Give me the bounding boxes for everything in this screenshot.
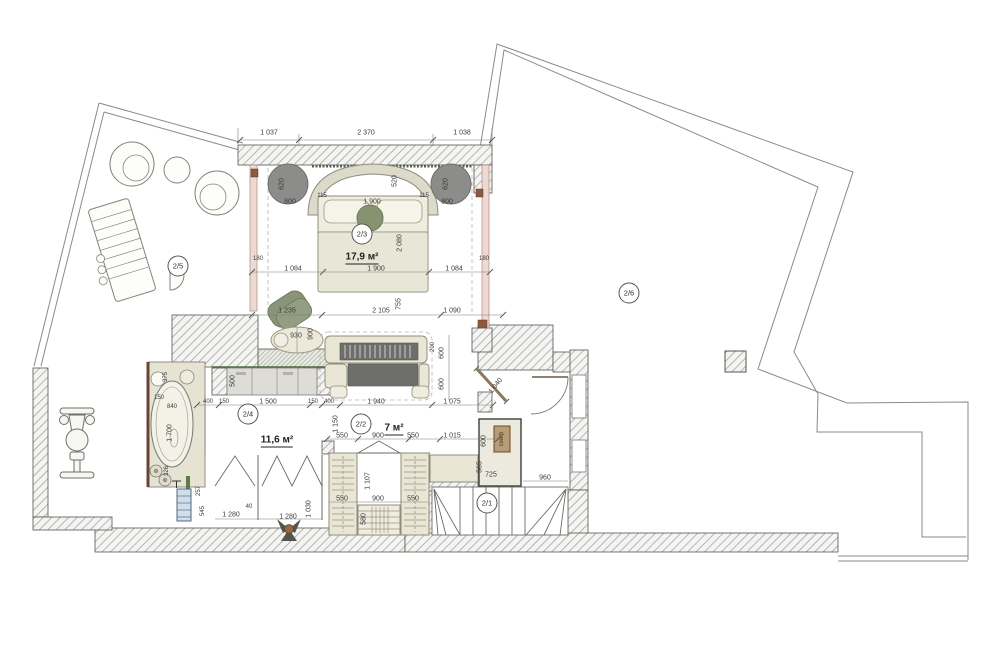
- radiator: [177, 489, 191, 521]
- dimension-label: 1 500: [259, 399, 277, 406]
- dimension-label: 565: [477, 461, 484, 473]
- dimension-label: 550: [336, 496, 348, 503]
- bathtub-zone: [148, 362, 205, 487]
- dimension-label: 600: [439, 347, 446, 359]
- dimension-label: 930: [290, 333, 302, 340]
- dimension-label: 2 080: [397, 234, 404, 252]
- dimension-label: 1 075: [443, 399, 461, 406]
- dimension-label: 840: [167, 404, 177, 410]
- dimension-label: 1 084: [284, 266, 302, 273]
- room-area-label: 11,6 м²: [261, 435, 293, 448]
- dimension-label: 40: [246, 504, 253, 510]
- dimension-label: 257: [196, 486, 202, 496]
- dimension-label: 500: [230, 375, 237, 387]
- dimension-label: 960: [539, 475, 551, 482]
- room-tag: 2/1: [477, 493, 498, 514]
- dimension-label: 115: [317, 193, 327, 199]
- wardrobe-columns: [329, 453, 429, 535]
- room-area-label: 7 м²: [384, 423, 403, 436]
- dimension-label: 620: [279, 178, 286, 190]
- dimension-label: 326: [164, 466, 170, 476]
- dimension-label: 150: [308, 399, 318, 405]
- dimension-label: 1 940: [367, 399, 385, 406]
- floorplan-canvas: 1 0372 3701 0386208006208001151151 90052…: [0, 0, 1000, 666]
- room-tag: 2/3: [352, 224, 373, 245]
- round-table: [164, 157, 190, 183]
- dimension-label: 600: [439, 378, 446, 390]
- dimension-label: 1 037: [260, 130, 278, 137]
- dimension-label: 1 700: [167, 424, 174, 442]
- room-area-label: 17,9 м²: [346, 252, 379, 265]
- dimension-label: 1 900: [363, 199, 381, 206]
- dimension-label: 1 280: [222, 512, 240, 519]
- dressing-table: [271, 327, 323, 353]
- dimension-label: 725: [485, 472, 497, 479]
- bed: [308, 164, 438, 292]
- bed-pillow: [377, 200, 422, 223]
- staircase: [432, 487, 568, 535]
- dimension-label: 1 235: [278, 308, 296, 315]
- dimension-label: 375: [163, 372, 169, 382]
- dimension-label: 2 370: [357, 130, 375, 137]
- dimension-label: 800: [441, 199, 453, 206]
- room-tag: 2/2: [351, 414, 372, 435]
- dimension-label: 150: [219, 399, 229, 405]
- door-to-terrace: [531, 377, 568, 414]
- dimension-label: 545: [200, 506, 206, 516]
- terrace-column: [725, 351, 746, 372]
- dimension-label: 900: [372, 496, 384, 503]
- exercise-machine: [60, 408, 95, 478]
- wardrobe-island: [325, 336, 429, 398]
- annotation-label: сейф: [499, 432, 505, 447]
- dimension-label: 550: [336, 433, 348, 440]
- dimension-label: 180: [479, 256, 489, 262]
- bifold-doors: [215, 441, 400, 486]
- dimension-label: 580: [361, 513, 368, 525]
- room-tag: 2/6: [619, 283, 640, 304]
- dimension-label: 1 280: [279, 514, 297, 521]
- room-tag: 2/4: [238, 404, 259, 425]
- dimension-label: 900: [308, 328, 315, 340]
- dimension-label: 1 030: [306, 500, 313, 518]
- dimension-label: 180: [253, 256, 263, 262]
- dimension-label: 1 084: [445, 266, 463, 273]
- dimension-label: 550: [407, 433, 419, 440]
- dimension-label: 1 015: [443, 433, 461, 440]
- floorplan-drawing: [0, 0, 1000, 666]
- dimension-label: 550: [407, 496, 419, 503]
- hall-cabinet: [430, 455, 478, 482]
- dimension-label: 900: [372, 433, 384, 440]
- dimension-label: 620: [443, 178, 450, 190]
- terrace-2-6-outline: [480, 44, 968, 561]
- dimension-label: 400: [203, 399, 213, 405]
- dimension-label: 600: [481, 435, 488, 447]
- threshold-green: [186, 476, 190, 490]
- dimension-label: 400: [324, 399, 334, 405]
- dimension-label: 150: [154, 395, 164, 401]
- dimension-label: 1 090: [443, 308, 461, 315]
- dimension-label: 200: [430, 342, 436, 352]
- dimension-label: 115: [419, 193, 429, 199]
- dimension-label: 1 107: [365, 472, 372, 490]
- dimension-label: 520: [392, 175, 399, 187]
- dimension-label: 800: [284, 199, 296, 206]
- room-tag: 2/5: [168, 256, 189, 277]
- dimension-label: 1 900: [367, 266, 385, 273]
- dimension-label: 2 105: [372, 308, 390, 315]
- dimension-label: 755: [396, 298, 403, 310]
- dimension-label: 1 038: [453, 130, 471, 137]
- sun-lounger: [78, 198, 156, 305]
- dimension-label: 1 150: [333, 415, 340, 433]
